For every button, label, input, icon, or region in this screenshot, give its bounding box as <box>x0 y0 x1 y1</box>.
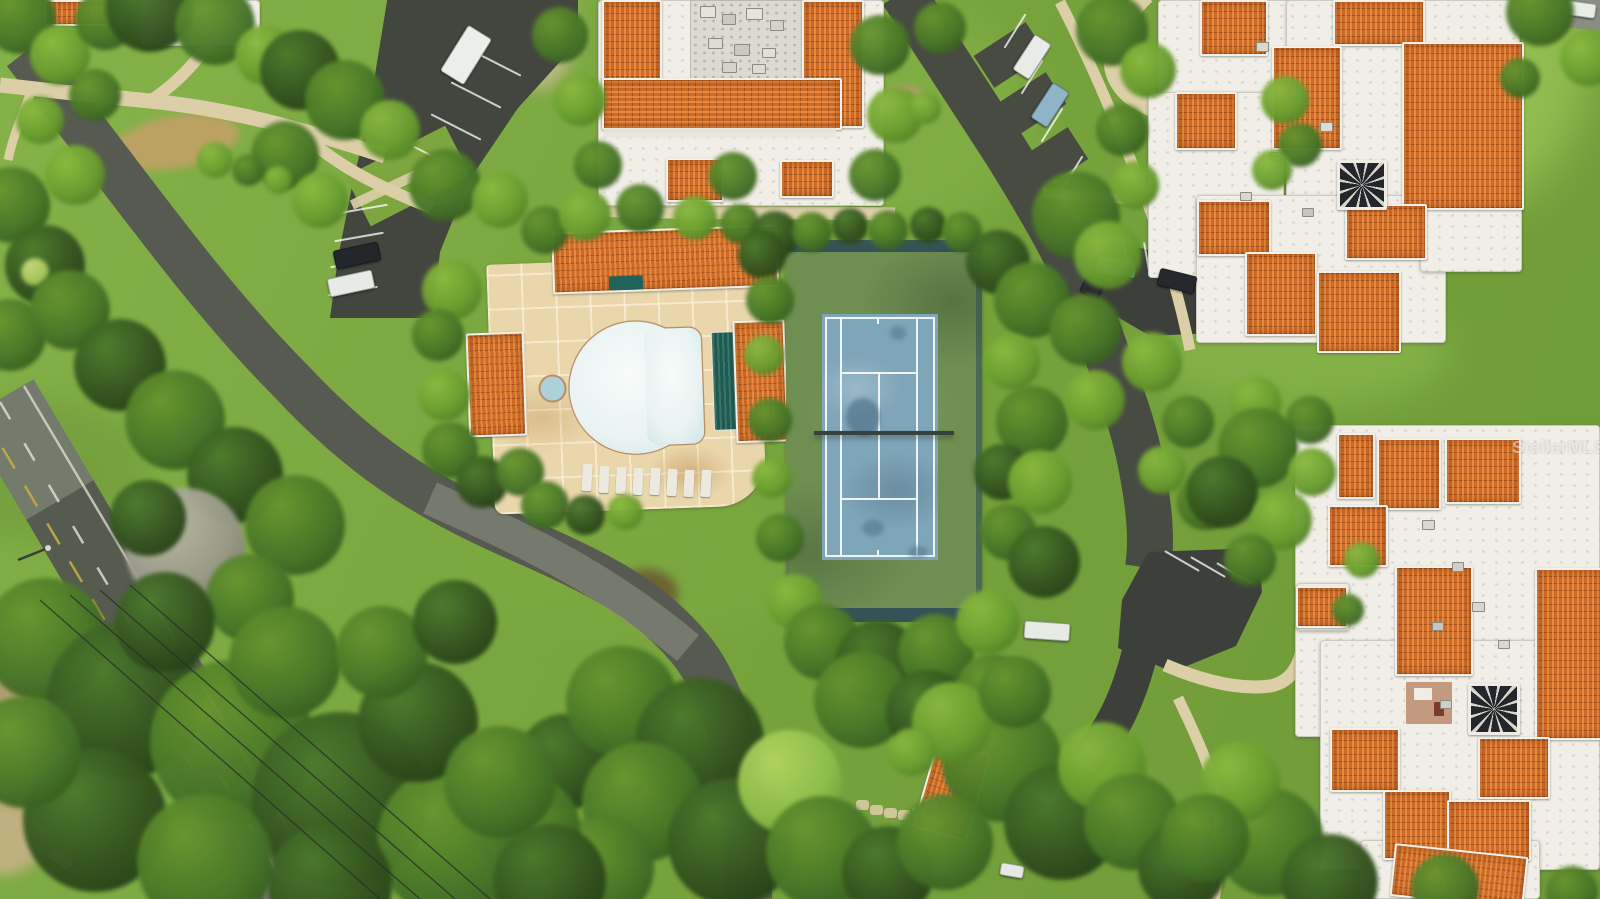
street-light-head <box>45 545 51 551</box>
street-light-pole <box>18 548 48 560</box>
watermark: StellarMLS <box>1512 437 1600 458</box>
aerial-photo: StellarMLS <box>0 0 1600 899</box>
power-lines <box>0 0 1600 899</box>
